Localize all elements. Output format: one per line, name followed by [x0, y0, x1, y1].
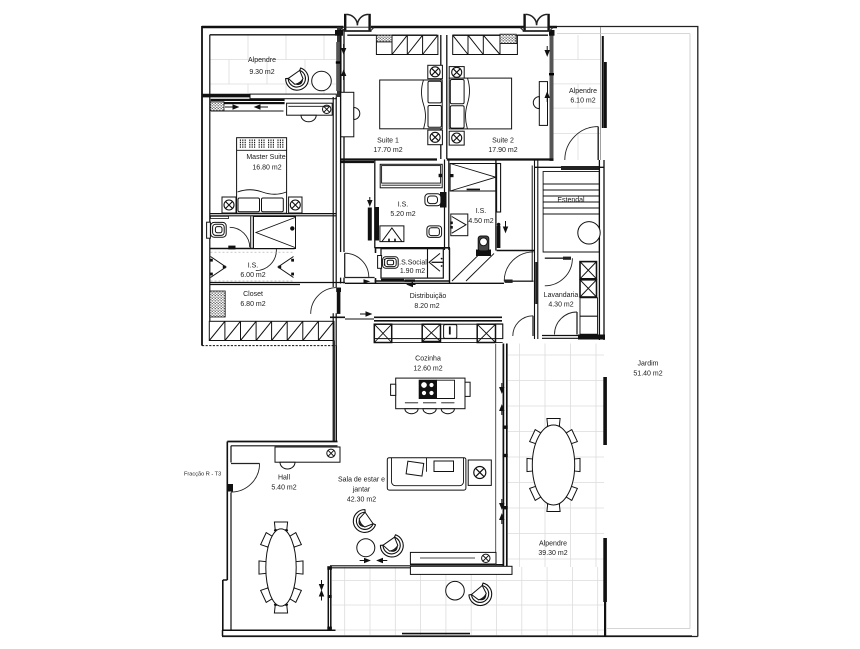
svg-text:6.80 m2: 6.80 m2	[240, 301, 265, 308]
svg-text:Suite 1: Suite 1	[377, 138, 399, 145]
svg-text:I.S.: I.S.	[476, 208, 487, 215]
svg-text:16.80 m2: 16.80 m2	[252, 165, 281, 172]
svg-text:17.90 m2: 17.90 m2	[488, 147, 517, 154]
svg-text:Jardim: Jardim	[637, 361, 658, 368]
svg-text:Estendal: Estendal	[557, 197, 585, 204]
svg-text:Sala de estar e: Sala de estar e	[338, 477, 385, 484]
svg-text:51.40 m2: 51.40 m2	[633, 371, 662, 378]
svg-text:Alpendre: Alpendre	[569, 88, 597, 95]
svg-text:Lavandaria: Lavandaria	[544, 292, 579, 299]
svg-text:42.30 m2: 42.30 m2	[347, 497, 376, 504]
svg-text:Alpendre: Alpendre	[539, 541, 567, 548]
svg-text:Fracção R - T3: Fracção R - T3	[184, 472, 221, 478]
svg-text:Closet: Closet	[243, 291, 263, 298]
svg-text:17.70 m2: 17.70 m2	[373, 147, 402, 154]
svg-text:Alpendre: Alpendre	[248, 57, 276, 64]
svg-text:Hall: Hall	[278, 475, 291, 482]
svg-text:I.S.Social: I.S.Social	[397, 260, 427, 267]
svg-text:39.30 m2: 39.30 m2	[538, 550, 567, 557]
svg-text:4.50 m2: 4.50 m2	[468, 218, 493, 225]
svg-text:I.S.: I.S.	[398, 202, 409, 209]
svg-text:12.60 m2: 12.60 m2	[413, 366, 442, 373]
svg-text:8.20 m2: 8.20 m2	[414, 303, 439, 310]
svg-text:I.S.: I.S.	[248, 263, 259, 270]
svg-text:5.40 m2: 5.40 m2	[271, 485, 296, 492]
svg-text:9.30 m2: 9.30 m2	[249, 69, 274, 76]
svg-text:Suite 2: Suite 2	[492, 138, 514, 145]
svg-text:jantar: jantar	[352, 487, 371, 494]
svg-text:1.90 m2: 1.90 m2	[400, 268, 425, 275]
svg-text:6.00 m2: 6.00 m2	[240, 272, 265, 279]
svg-text:6.10 m2: 6.10 m2	[570, 98, 595, 105]
svg-text:4.30 m2: 4.30 m2	[548, 302, 573, 309]
svg-text:Cozinha: Cozinha	[415, 356, 441, 363]
svg-text:Master Suite: Master Suite	[246, 154, 285, 161]
svg-text:Distribuição: Distribuição	[410, 293, 447, 300]
svg-text:5.20 m2: 5.20 m2	[390, 211, 415, 218]
